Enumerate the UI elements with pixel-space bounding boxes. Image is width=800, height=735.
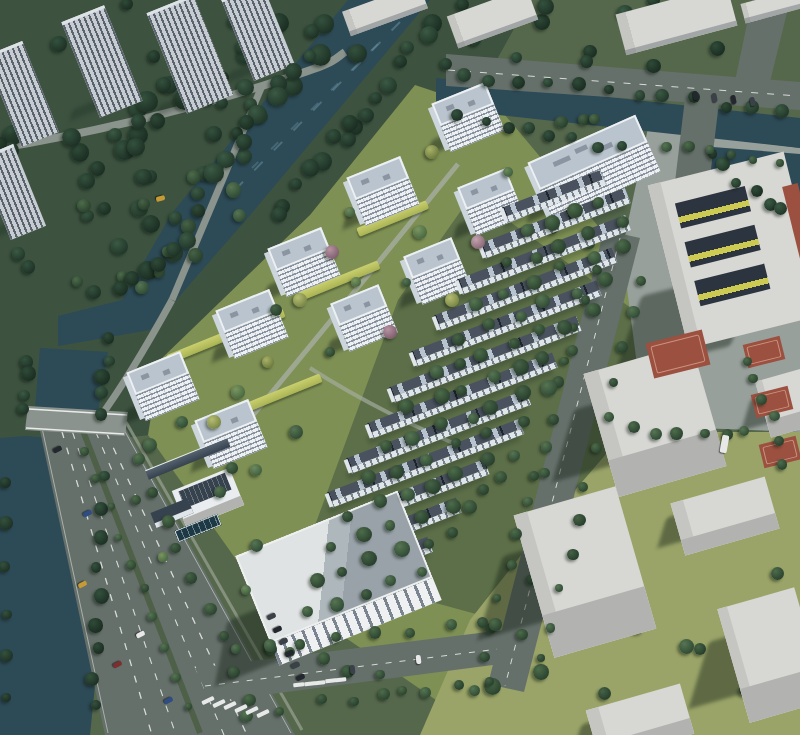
terrain	[0, 0, 800, 735]
aerial-rendering	[0, 0, 800, 735]
road-northeast-edge	[734, 0, 790, 90]
